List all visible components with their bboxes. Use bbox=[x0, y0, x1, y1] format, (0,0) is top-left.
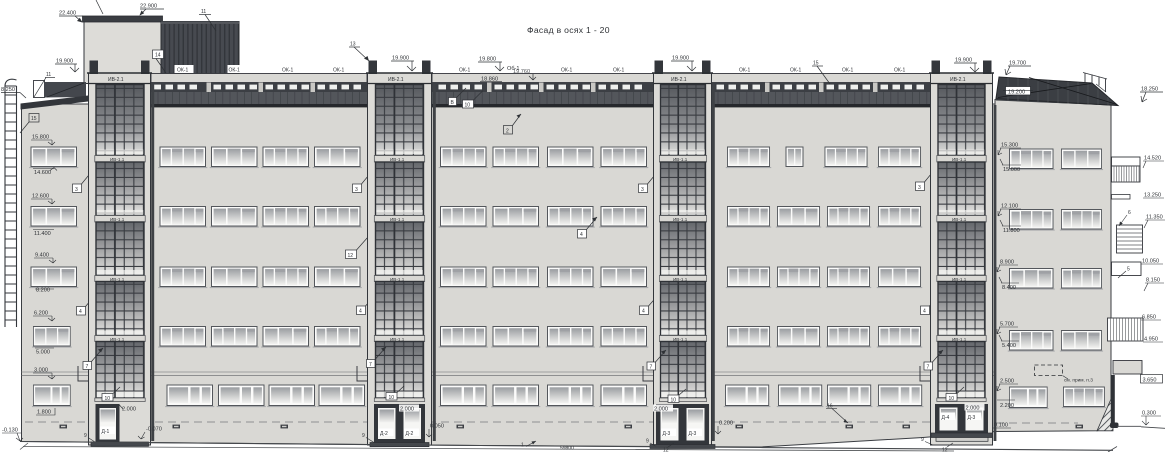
svg-text:9.400: 9.400 bbox=[35, 253, 49, 259]
svg-text:10: 10 bbox=[105, 396, 111, 402]
svg-text:6: 6 bbox=[1128, 210, 1131, 216]
svg-text:ОК-1: ОК-1 bbox=[229, 68, 240, 74]
svg-text:11: 11 bbox=[46, 72, 51, 78]
svg-text:ИВ-2.1: ИВ-2.1 bbox=[108, 77, 124, 83]
svg-text:Д-3: Д-3 bbox=[689, 431, 697, 437]
svg-text:ОК-1: ОК-1 bbox=[459, 68, 470, 74]
svg-text:15.000: 15.000 bbox=[1003, 167, 1020, 173]
svg-text:ИВ-1.1: ИВ-1.1 bbox=[110, 277, 125, 282]
svg-text:ОК-1: ОК-1 bbox=[739, 68, 750, 74]
svg-text:ИВ-1.1: ИВ-1.1 bbox=[390, 217, 405, 222]
svg-text:ОК-1: ОК-1 bbox=[282, 68, 293, 74]
svg-text:ИВ-1.1: ИВ-1.1 bbox=[952, 157, 967, 162]
svg-text:ИВ-1.1: ИВ-1.1 bbox=[952, 217, 967, 222]
svg-text:7: 7 bbox=[650, 365, 653, 371]
svg-text:Д-3: Д-3 bbox=[968, 415, 976, 421]
svg-text:14.600: 14.600 bbox=[34, 170, 51, 176]
svg-text:4: 4 bbox=[642, 309, 645, 315]
svg-text:-0.130: -0.130 bbox=[2, 428, 18, 434]
svg-text:8.900: 8.900 bbox=[1000, 260, 1014, 266]
svg-text:10: 10 bbox=[465, 103, 471, 109]
svg-text:ИВ-1.1: ИВ-1.1 bbox=[673, 337, 688, 342]
svg-text:6.850: 6.850 bbox=[1142, 315, 1156, 321]
svg-text:8.200: 8.200 bbox=[36, 288, 50, 294]
svg-text:4.950: 4.950 bbox=[1144, 337, 1158, 343]
svg-text:ИВ-2.1: ИВ-2.1 bbox=[671, 77, 687, 83]
svg-text:4: 4 bbox=[359, 309, 362, 315]
svg-text:Д-4: Д-4 bbox=[942, 415, 950, 421]
svg-text:11.350: 11.350 bbox=[1146, 215, 1163, 221]
svg-text:2.000: 2.000 bbox=[654, 407, 668, 413]
svg-text:4: 4 bbox=[79, 309, 82, 315]
svg-text:19.900: 19.900 bbox=[56, 59, 73, 65]
svg-text:Д-2: Д-2 bbox=[406, 431, 414, 437]
svg-text:ОК-1: ОК-1 bbox=[561, 68, 572, 74]
svg-text:3: 3 bbox=[918, 185, 921, 191]
svg-text:2.500: 2.500 bbox=[1000, 379, 1014, 385]
svg-text:59800: 59800 bbox=[560, 446, 574, 452]
svg-text:Д-2: Д-2 bbox=[380, 431, 388, 437]
svg-text:ИВ-1.1: ИВ-1.1 bbox=[952, 337, 967, 342]
svg-text:8.400: 8.400 bbox=[1002, 285, 1016, 291]
svg-text:12.100: 12.100 bbox=[1001, 204, 1018, 210]
svg-text:ОК-1: ОК-1 bbox=[613, 68, 624, 74]
svg-text:6.200: 6.200 bbox=[34, 311, 48, 317]
svg-text:19.900: 19.900 bbox=[392, 56, 409, 62]
svg-text:12: 12 bbox=[663, 448, 669, 452]
svg-text:4: 4 bbox=[923, 309, 926, 315]
svg-text:ИВ-2.1: ИВ-2.1 bbox=[950, 77, 966, 83]
svg-text:11: 11 bbox=[201, 9, 206, 15]
svg-text:2.000: 2.000 bbox=[122, 407, 136, 413]
svg-text:8.250: 8.250 bbox=[1, 87, 15, 93]
svg-text:14: 14 bbox=[155, 53, 161, 59]
svg-text:0.300: 0.300 bbox=[1142, 411, 1156, 417]
svg-text:ОК-1: ОК-1 bbox=[177, 68, 188, 74]
svg-text:0.200: 0.200 bbox=[719, 421, 733, 427]
svg-text:12: 12 bbox=[942, 448, 948, 452]
svg-text:ОК-1: ОК-1 bbox=[790, 68, 801, 74]
svg-text:9: 9 bbox=[84, 433, 87, 439]
svg-text:15: 15 bbox=[813, 61, 819, 67]
svg-text:19.760: 19.760 bbox=[513, 69, 530, 75]
svg-text:9: 9 bbox=[921, 437, 924, 443]
svg-text:ИВ-1.1: ИВ-1.1 bbox=[390, 277, 405, 282]
svg-text:3.650: 3.650 bbox=[1143, 377, 1157, 383]
svg-text:3: 3 bbox=[641, 187, 644, 193]
svg-text:19.200: 19.200 bbox=[1008, 89, 1025, 95]
svg-text:ИВ-1.1: ИВ-1.1 bbox=[390, 337, 405, 342]
svg-text:-0.070: -0.070 bbox=[146, 427, 162, 433]
svg-text:ИВ-1.1: ИВ-1.1 bbox=[390, 157, 405, 162]
svg-text:4: 4 bbox=[580, 232, 583, 238]
svg-text:5.700: 5.700 bbox=[1000, 322, 1014, 328]
svg-text:9: 9 bbox=[362, 433, 365, 439]
svg-text:см. прим. п.3: см. прим. п.3 bbox=[1064, 378, 1093, 384]
svg-text:2: 2 bbox=[506, 129, 509, 135]
svg-text:ОК-1: ОК-1 bbox=[333, 68, 344, 74]
svg-text:ИВ-1.1: ИВ-1.1 bbox=[673, 157, 688, 162]
svg-text:5.400: 5.400 bbox=[1002, 343, 1016, 349]
svg-text:13.250: 13.250 bbox=[1144, 193, 1161, 199]
svg-text:9: 9 bbox=[646, 439, 649, 445]
svg-text:1.800: 1.800 bbox=[37, 410, 51, 416]
svg-text:10: 10 bbox=[671, 397, 677, 403]
svg-text:13: 13 bbox=[350, 42, 356, 48]
svg-text:2.200: 2.200 bbox=[1000, 403, 1014, 409]
svg-text:19.700: 19.700 bbox=[1009, 61, 1026, 67]
svg-text:3: 3 bbox=[355, 187, 358, 193]
svg-text:ИВ-1.1: ИВ-1.1 bbox=[952, 277, 967, 282]
svg-text:11.800: 11.800 bbox=[1003, 228, 1020, 234]
svg-text:3: 3 bbox=[75, 187, 78, 193]
svg-text:ИВ-2.1: ИВ-2.1 bbox=[388, 77, 404, 83]
svg-text:ИВ-1.1: ИВ-1.1 bbox=[110, 217, 125, 222]
svg-text:Д-1: Д-1 bbox=[102, 429, 110, 435]
svg-text:14.520: 14.520 bbox=[1144, 156, 1161, 162]
svg-text:19.900: 19.900 bbox=[955, 58, 972, 64]
svg-text:12.600: 12.600 bbox=[32, 194, 49, 200]
svg-text:15.800: 15.800 bbox=[32, 135, 49, 141]
svg-text:7: 7 bbox=[86, 364, 89, 370]
svg-text:ОК-1: ОК-1 bbox=[842, 68, 853, 74]
svg-text:ИВ-1.1: ИВ-1.1 bbox=[673, 217, 688, 222]
svg-text:ИВ-1.1: ИВ-1.1 bbox=[110, 157, 125, 162]
svg-text:7: 7 bbox=[369, 362, 372, 368]
svg-text:15.300: 15.300 bbox=[1001, 143, 1018, 149]
svg-text:3.000: 3.000 bbox=[34, 368, 48, 374]
svg-text:5.000: 5.000 bbox=[36, 350, 50, 356]
svg-text:11.400: 11.400 bbox=[34, 231, 51, 237]
svg-text:10: 10 bbox=[389, 395, 395, 401]
svg-text:19.800: 19.800 bbox=[479, 57, 496, 63]
svg-text:7: 7 bbox=[927, 365, 930, 371]
svg-text:2.000: 2.000 bbox=[966, 406, 980, 412]
svg-text:22.400: 22.400 bbox=[59, 11, 76, 17]
svg-text:Фасад в осях 1 - 20: Фасад в осях 1 - 20 bbox=[527, 25, 610, 35]
svg-text:0.050: 0.050 bbox=[430, 424, 444, 430]
svg-text:8.150: 8.150 bbox=[1146, 278, 1160, 284]
svg-text:12: 12 bbox=[348, 253, 354, 259]
svg-text:10.050: 10.050 bbox=[1142, 259, 1159, 265]
svg-text:ОК-1: ОК-1 bbox=[894, 68, 905, 74]
svg-text:2.000: 2.000 bbox=[400, 407, 414, 413]
svg-text:5: 5 bbox=[1127, 267, 1130, 273]
svg-text:19.900: 19.900 bbox=[672, 56, 689, 62]
svg-text:15: 15 bbox=[31, 116, 37, 122]
svg-text:10: 10 bbox=[949, 396, 955, 402]
svg-text:1: 1 bbox=[521, 443, 524, 449]
svg-text:0.100: 0.100 bbox=[994, 423, 1008, 429]
svg-text:Д-3: Д-3 bbox=[663, 431, 671, 437]
svg-text:ИВ-1.1: ИВ-1.1 bbox=[110, 337, 125, 342]
svg-text:18.250: 18.250 bbox=[1141, 87, 1158, 93]
svg-text:ИВ-1.1: ИВ-1.1 bbox=[673, 277, 688, 282]
